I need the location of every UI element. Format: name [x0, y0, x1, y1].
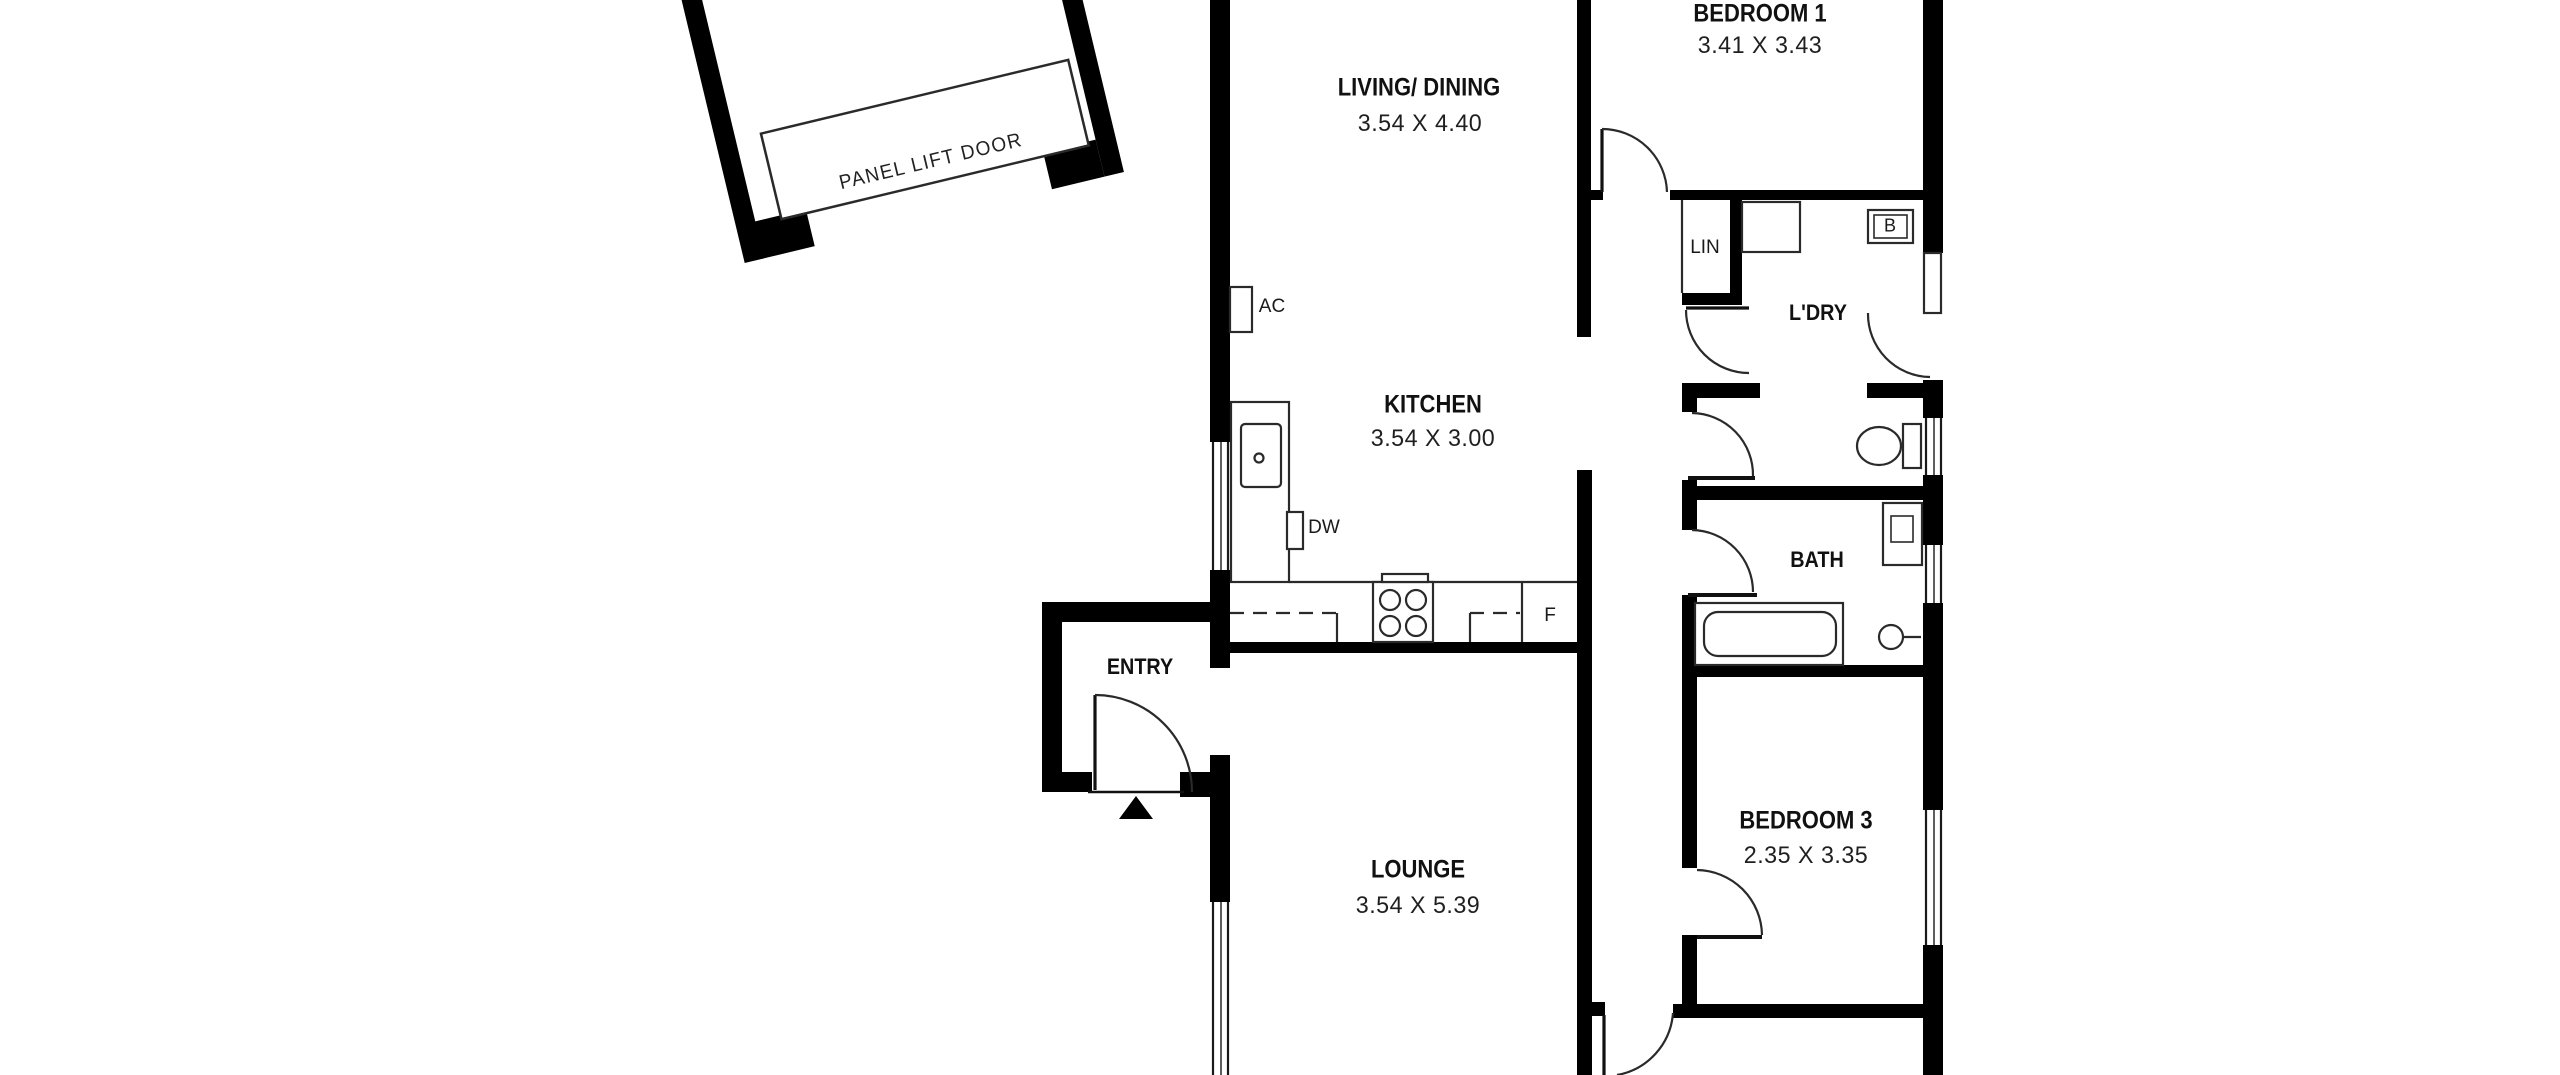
wall-entry-stub — [1180, 772, 1210, 797]
wall-right-4 — [1923, 603, 1943, 810]
bedroom1-door-arc — [1602, 129, 1667, 192]
wall-ldry-bottom-left — [1682, 383, 1760, 398]
wall-right-3 — [1923, 475, 1943, 545]
room-label-bath: BATH — [1790, 547, 1844, 573]
wall-right-2 — [1923, 380, 1943, 418]
room-label-laundry: L'DRY — [1789, 300, 1847, 326]
lounge-window — [1213, 902, 1228, 1075]
room-label-entry: ENTRY — [1107, 654, 1173, 680]
wall-linen-right — [1730, 198, 1742, 305]
toilet-fixture — [1857, 427, 1901, 465]
fixtures-group — [1230, 200, 1922, 665]
wall-bath-bottom — [1683, 665, 1923, 677]
b-unit-label: B — [1884, 216, 1896, 237]
wall-right-5 — [1923, 945, 1943, 1075]
bath-door-arc — [1692, 530, 1753, 592]
shower-vanity-inner — [1891, 516, 1913, 542]
room-dims-living-dining: 3.54 X 4.40 — [1358, 110, 1482, 138]
entry-arrow-icon — [1119, 796, 1153, 819]
floor-plan-drawing — [0, 0, 2560, 1075]
bedroom3-door-arc — [1697, 870, 1762, 935]
toilet-cistern — [1903, 424, 1921, 468]
walls-group — [1042, 0, 1943, 1075]
wall-bottom-right — [1673, 1004, 1923, 1018]
wall-wc-bath-divider — [1690, 486, 1930, 500]
linen-label: LIN — [1690, 237, 1720, 259]
wc-door-arc — [1692, 413, 1753, 476]
stove-burner-icon — [1380, 616, 1400, 636]
wall-mid-upper — [1577, 0, 1591, 337]
air-conditioner-label: AC — [1259, 296, 1285, 318]
wall-left-lower — [1210, 755, 1230, 902]
stove-burner-icon — [1406, 616, 1426, 636]
wall-left-upper — [1210, 0, 1230, 442]
room-dims-kitchen: 3.54 X 3.00 — [1371, 425, 1495, 453]
fridge-label: F — [1544, 605, 1556, 627]
sink-faucet-icon — [1255, 454, 1264, 463]
bath-basin-fixture — [1879, 625, 1903, 649]
stove-burner-icon — [1406, 590, 1426, 610]
garage-structure — [677, 0, 1124, 263]
wc-window — [1926, 418, 1941, 475]
wall-rooms-d — [1682, 935, 1697, 1004]
bathtub-inner — [1704, 612, 1836, 656]
kitchen-window — [1213, 442, 1228, 570]
entry-door-arc — [1095, 695, 1192, 792]
wall-linen-bottom — [1682, 293, 1742, 305]
room-dims-bedroom1: 3.41 X 3.43 — [1698, 32, 1822, 60]
room-label-kitchen: KITCHEN — [1384, 391, 1482, 420]
laundry-door-arc — [1686, 310, 1749, 373]
wall-mid-lower — [1577, 470, 1592, 1075]
bath-window — [1926, 545, 1941, 603]
room-label-bedroom1: BEDROOM 1 — [1693, 0, 1826, 29]
dishwasher-fixture — [1287, 512, 1303, 549]
room-label-bedroom3: BEDROOM 3 — [1739, 807, 1872, 836]
laundry-backdoor-arc — [1868, 313, 1930, 377]
dishwasher-label: DW — [1308, 517, 1340, 539]
laundry-bench-fixture — [1742, 202, 1800, 252]
room-dims-lounge: 3.54 X 5.39 — [1356, 892, 1480, 920]
wall-bed1-bottom — [1670, 190, 1943, 200]
wall-entry-top — [1042, 602, 1230, 622]
wall-bed1-stub — [1577, 190, 1603, 200]
bedroom3-window — [1926, 810, 1941, 945]
wall-entry-left — [1042, 602, 1062, 792]
wall-entry-bottom — [1042, 772, 1092, 792]
stove-back-panel — [1382, 574, 1428, 582]
air-conditioner-fixture — [1230, 287, 1252, 332]
laundry-backdoor-panel — [1924, 253, 1941, 313]
room-dims-bedroom3: 2.35 X 3.35 — [1744, 842, 1868, 870]
room-label-living-dining: LIVING/ DINING — [1338, 74, 1501, 103]
stove-burner-icon — [1380, 590, 1400, 610]
room-label-lounge: LOUNGE — [1371, 856, 1465, 885]
wall-kitchen-bottom — [1228, 642, 1580, 653]
wall-hall-door-stub — [1589, 1002, 1605, 1016]
floor-plan-page: { "rooms": [ {"name": "LIVING/ DINING", … — [0, 0, 2560, 1075]
panel-lift-door-outline — [761, 60, 1089, 219]
garage-left-wall — [677, 0, 764, 263]
wall-right-1 — [1923, 0, 1943, 253]
hall-door-arc — [1617, 1013, 1673, 1075]
